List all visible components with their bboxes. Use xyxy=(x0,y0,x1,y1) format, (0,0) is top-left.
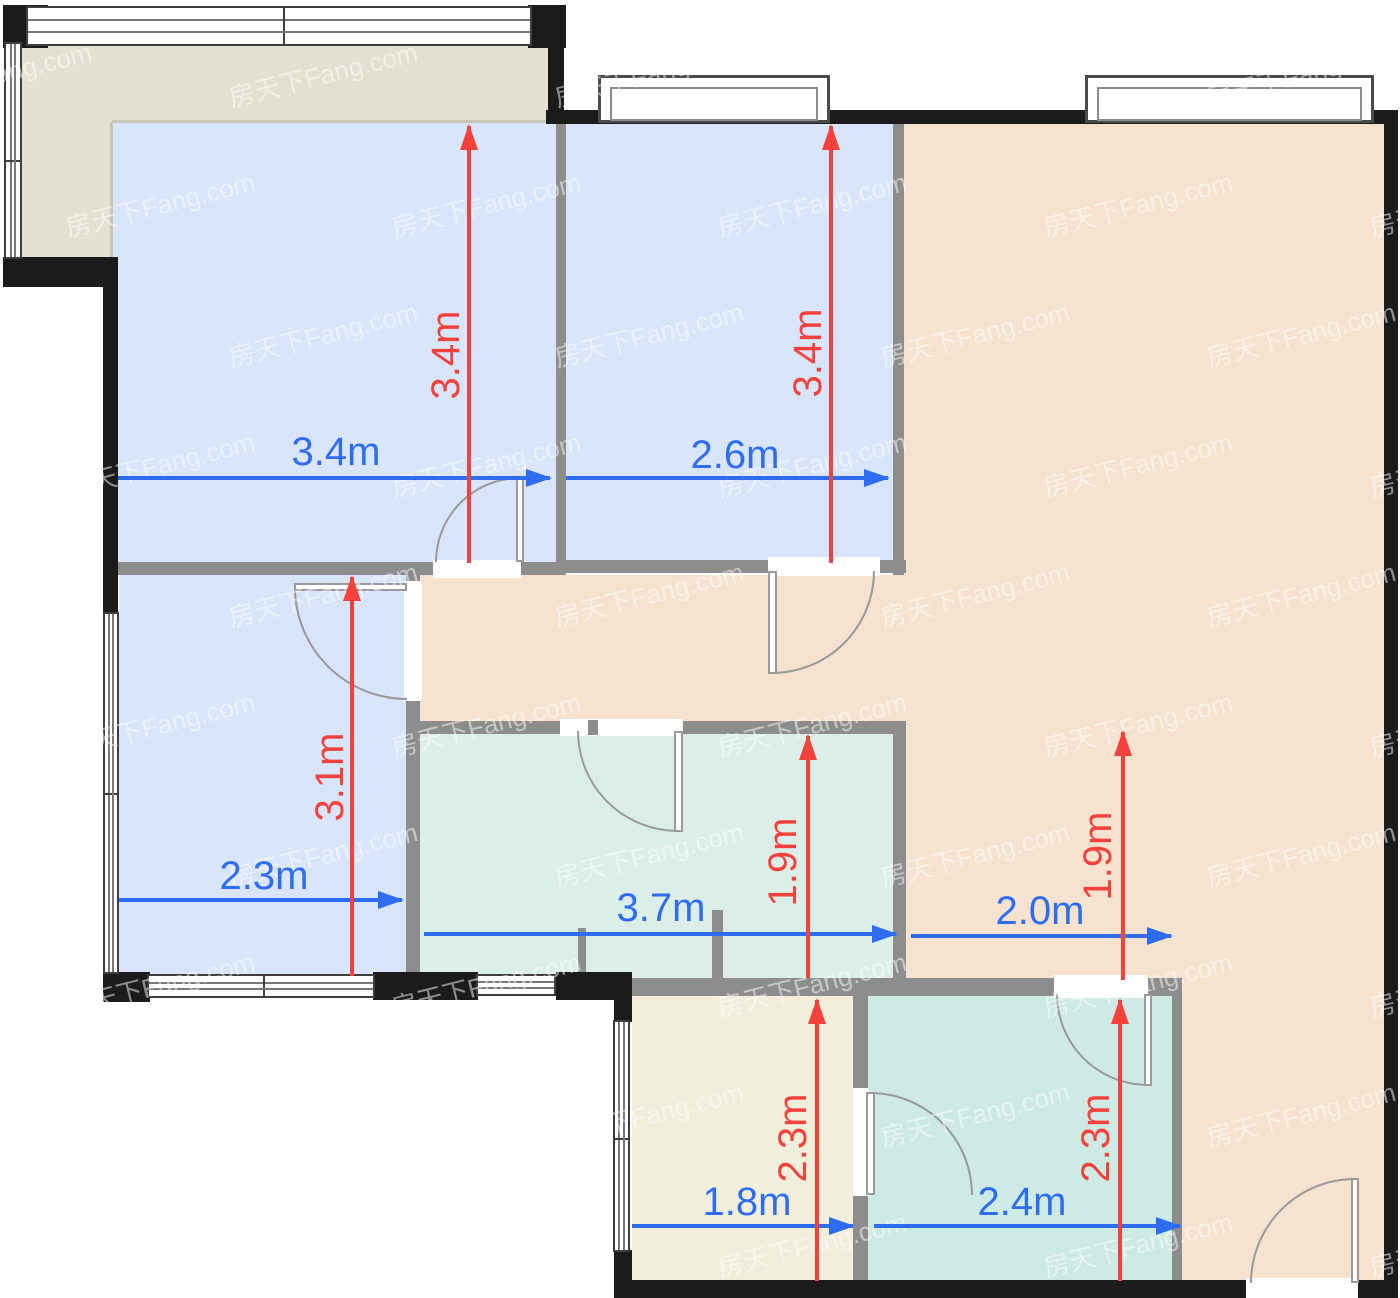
floor-plan: 3.4m 2.6m 2.3m 3.7m 2.0m 1.8m 2.4m 3.4m … xyxy=(0,0,1400,1298)
wall-segment xyxy=(712,910,723,987)
wall-segment xyxy=(103,285,118,614)
wall-segment xyxy=(556,122,566,575)
dimension-arrow-horizontal xyxy=(424,932,896,936)
watermark: 房天下Fang.com xyxy=(387,1202,584,1285)
wall-corner xyxy=(614,994,632,1022)
balcony-room-boundary xyxy=(110,122,113,259)
wall-segment xyxy=(373,972,478,1000)
kitchen-window xyxy=(476,974,556,996)
window-mullion xyxy=(615,1138,628,1140)
watermark: 房天下Fang.com xyxy=(0,292,95,375)
watermark: 房天下Fang.com xyxy=(876,32,1073,115)
dimension-label: 3.4m xyxy=(788,309,828,398)
dimension-label: 2.3m xyxy=(1076,1094,1116,1183)
wall-segment xyxy=(893,721,906,996)
watermark: 房天下Fang.com xyxy=(0,1072,95,1155)
dimension-label: 1.8m xyxy=(703,1182,792,1222)
dimension-arrow-horizontal xyxy=(119,898,402,902)
window-mullion xyxy=(283,8,285,44)
dimension-label: 3.7m xyxy=(617,888,706,928)
dimension-arrow-horizontal xyxy=(118,476,550,480)
wall-segment xyxy=(1172,996,1182,1282)
bay-window xyxy=(1097,87,1362,121)
utility-window xyxy=(613,1020,630,1252)
dimension-label: 3.1m xyxy=(310,733,350,822)
dimension-arrow-vertical xyxy=(815,1000,819,1281)
dimension-label: 1.9m xyxy=(763,818,803,907)
window-mullion xyxy=(6,160,20,162)
balcony-window xyxy=(4,42,22,259)
watermark: 房天下Fang.com xyxy=(224,1072,421,1155)
watermark: 房天下Fang.com xyxy=(0,812,95,895)
dimension-arrow-vertical xyxy=(1121,732,1125,980)
dimension-label: 2.3m xyxy=(220,856,309,896)
dimension-label: 2.3m xyxy=(773,1094,813,1183)
dimension-arrow-horizontal xyxy=(911,934,1171,938)
bay-window xyxy=(610,87,818,121)
dimension-label: 1.9m xyxy=(1078,812,1118,901)
watermark: 房天下Fang.com xyxy=(61,1202,258,1285)
wall-segment xyxy=(1384,110,1398,1298)
room-utility-fill xyxy=(632,996,853,1282)
dimension-label: 2.4m xyxy=(978,1182,1067,1222)
wall-segment xyxy=(548,42,564,112)
bedroom-left-window xyxy=(103,612,119,974)
room-balcony-fill xyxy=(20,44,549,122)
watermark: 房天下Fang.com xyxy=(0,552,95,635)
dimension-label: 2.0m xyxy=(996,891,1085,931)
room-bedroom-top-middle-fill xyxy=(566,124,893,562)
window-mullion xyxy=(263,976,265,996)
wall-corner xyxy=(103,972,150,1002)
dimension-arrow-horizontal xyxy=(874,1224,1180,1228)
wall-segment xyxy=(3,257,118,287)
bedroom-left-window xyxy=(147,974,375,998)
dimension-label: 3.4m xyxy=(292,432,381,472)
balcony-window xyxy=(26,6,532,46)
dimension-arrow-vertical xyxy=(806,736,810,978)
balcony-room-boundary xyxy=(112,120,549,123)
door-opening xyxy=(433,560,521,578)
dimension-arrow-vertical xyxy=(1118,1000,1122,1281)
room-balcony-fill xyxy=(20,122,112,259)
dimension-label: 3.4m xyxy=(426,311,466,400)
dimension-label: 2.6m xyxy=(691,435,780,475)
window-mullion xyxy=(105,793,117,795)
dimension-arrow-horizontal xyxy=(632,1224,853,1228)
wall-segment xyxy=(893,122,904,575)
